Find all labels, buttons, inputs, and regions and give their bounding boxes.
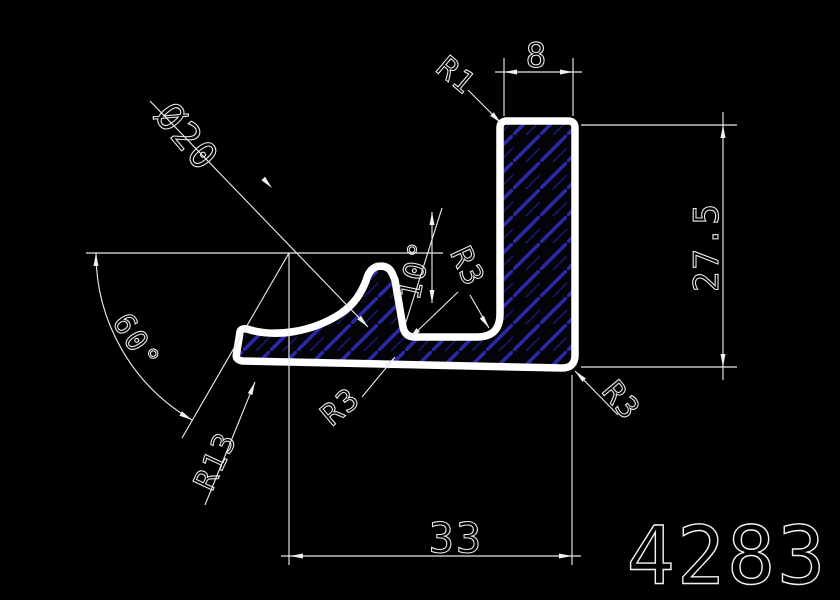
dim-top-width-text: 8: [526, 36, 548, 76]
cad-drawing-canvas: 8 27.5 33 Ø20 60° 10°: [0, 0, 840, 600]
dim-right-height-text: 27.5: [687, 202, 727, 292]
dim-bottom-width-text: 33: [429, 514, 484, 563]
part-number-text: 4283: [627, 510, 828, 600]
